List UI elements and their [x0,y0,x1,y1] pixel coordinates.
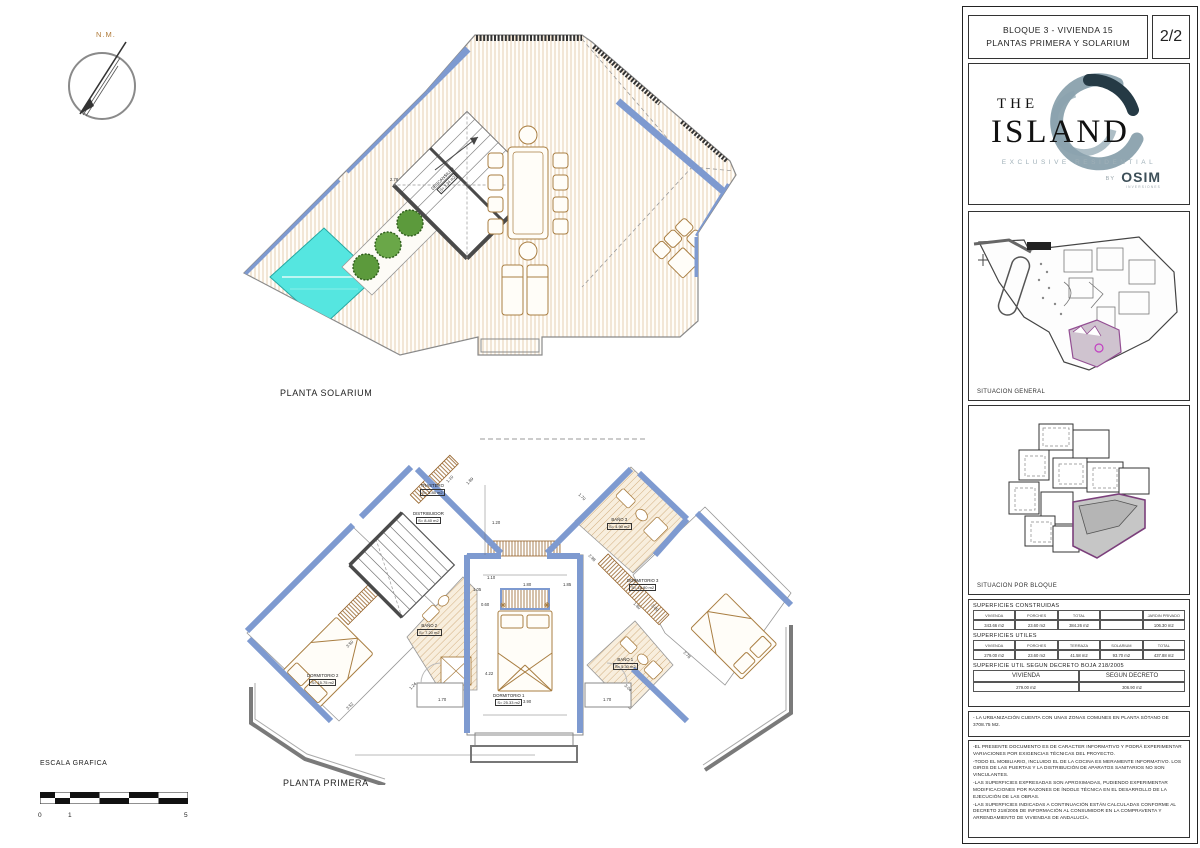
dim: 1.70 [603,697,611,702]
decreto-table: VIVIENDA SEGUN DECRETO 279.00 m2 306.90 … [973,670,1185,692]
planta-solarium-drawing: DESCANSILLO S= 3.34 m2 2.78 [230,25,750,375]
title-block: BLOQUE 3 - VIVIENDA 15 PLANTAS PRIMERA Y… [968,15,1190,59]
utiles-table: VIVIENDA PORCHES TERRAZA SOLARIUM TOTAL … [973,640,1185,660]
sheet-number: 2/2 [1152,15,1190,59]
decreto-title: SUPERFICIE UTIL SEGUN DECRETO BOJA 218/2… [973,663,1185,669]
construidas-title: SUPERFICIES CONSTRUIDAS [973,603,1185,609]
logo-by: BY [1106,176,1115,182]
drawing-sheet: N.M. [0,0,1200,848]
disclaimer-1: -EL PRESENTE DOCUMENTO ES DE CARACTER IN… [973,744,1185,758]
sheet-title-line1: BLOQUE 3 - VIVIENDA 15 [1003,24,1113,37]
surfaces-tables: SUPERFICIES CONSTRUIDAS VIVIENDA PORCHES… [968,599,1190,707]
planta-primera-drawing: TRASTEROS= 3.85 m2 DISTRIBUIDORS= 8.40 m… [235,425,795,785]
room-label-dormitorio1: DORMITORIO 1S= 25.33 m2 [493,693,524,706]
construidas-table: VIVIENDA PORCHES TOTAL JARDIN PRIVADO 34… [973,610,1185,630]
north-arrow-icon [50,28,160,133]
utiles-title: SUPERFICIES UTILES [973,633,1185,639]
logo-the: THE [997,96,1038,113]
situacion-bloque-panel: SITUACION POR BLOQUE [968,405,1190,595]
scale-bar [40,792,188,804]
title-block-column: BLOQUE 3 - VIVIENDA 15 PLANTAS PRIMERA Y… [962,6,1198,844]
scale-tick-1: 1 [68,812,72,819]
dim: 3.90 [523,699,531,704]
disclaimer-notes: -EL PRESENTE DOCUMENTO ES DE CARACTER IN… [968,740,1190,838]
room-label-bano1: BAÑO 1S= 5.30 m2 [613,657,638,670]
sheet-title-line2: PLANTAS PRIMERA Y SOLARIUM [986,37,1130,50]
situacion-bloque-label: SITUACION POR BLOQUE [977,583,1057,589]
room-label-bano2: BAÑO 2S= 7.20 m2 [417,623,442,636]
dim: 1.80 [523,582,531,587]
room-label-trastero: TRASTEROS= 3.85 m2 [420,483,445,496]
room-label-dormitorio2: DORMITORIO 2S= 15.75 m2 [307,673,338,686]
dim: 1.85 [563,582,571,587]
disclaimer-4: -LAS SUPERFICIES INDICADAS A CONTINUACIÓ… [973,802,1185,822]
scale-tick-0: 0 [38,812,42,819]
scale-tick-5: 5 [184,812,188,819]
dim: 0.60 [481,602,489,607]
urbanizacion-note: - LA URBANIZACIÓN CUENTA CON UNAS ZONAS … [968,711,1190,737]
logo-subtitle: EXCLUSIVE RESIDENTIAL [969,159,1189,166]
situacion-bloque-map [969,406,1189,571]
disclaimer-3: -LAS SUPERFICIES EXPRESADAS SON APROXIMA… [973,780,1185,800]
situacion-general-map [969,212,1189,377]
situacion-general-label: SITUACION GENERAL [977,389,1045,395]
dormitorio1 [467,541,583,762]
dim: 1.20 [492,520,500,525]
logo-box: THE ISLAND EXCLUSIVE RESIDENTIAL BY OSIM… [968,63,1190,205]
logo-island: ISLAND [991,114,1130,151]
disclaimer-2: -TODO EL MOBILIARIO, INCLUIDO EL DE LA C… [973,759,1185,779]
room-label-bano3: BAÑO 3S= 4.90 m2 [607,517,632,530]
logo-brand-sub: INVERSIONES [1126,185,1161,189]
dim: 1.70 [438,697,446,702]
scale-title: ESCALA GRAFICA [40,760,107,767]
dim: 4.22 [485,671,493,676]
planta-solarium-title: PLANTA SOLARIUM [280,388,372,398]
dimension-label: 2.78 [390,177,398,182]
room-label-distribuidor: DISTRIBUIDORS= 8.40 m2 [413,511,444,524]
dim: 1.05 [473,587,481,592]
logo-brand: OSIM [1121,169,1161,185]
situacion-general-panel: SITUACION GENERAL [968,211,1190,401]
room-label-dormitorio3: DORMITORIO 3S= 18.80 m2 [627,578,658,591]
dim: 1.10 [487,575,495,580]
planta-primera-title: PLANTA PRIMERA [283,778,369,788]
